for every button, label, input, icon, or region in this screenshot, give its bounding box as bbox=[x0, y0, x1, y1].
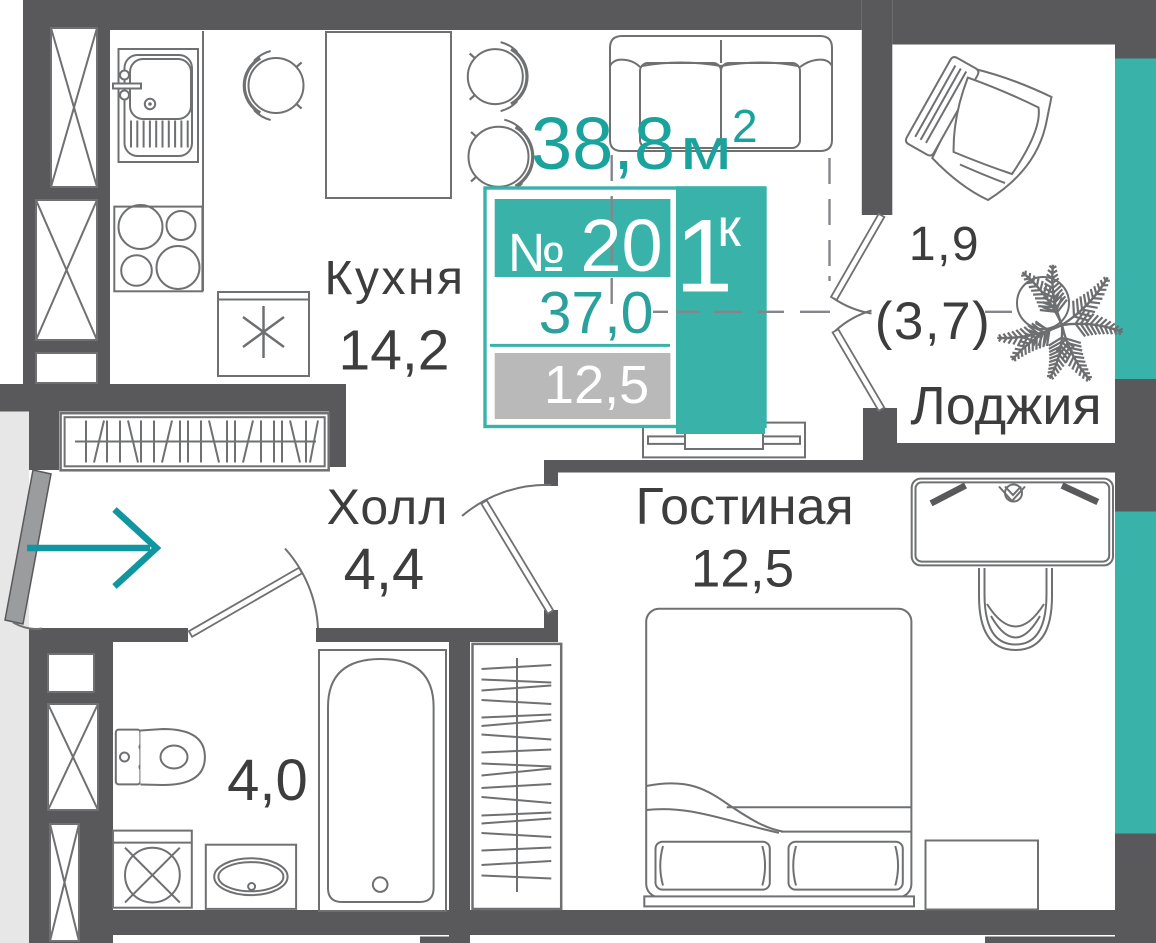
svg-text:37,0: 37,0 bbox=[539, 280, 654, 346]
svg-text:12,5: 12,5 bbox=[544, 355, 649, 415]
svg-text:Лоджия: Лоджия bbox=[910, 376, 1101, 436]
svg-text:Холл: Холл bbox=[327, 479, 449, 535]
svg-text:Гостиная: Гостиная bbox=[635, 478, 853, 536]
svg-text:14,2: 14,2 bbox=[339, 319, 450, 383]
svg-text:(3,7): (3,7) bbox=[875, 292, 991, 351]
svg-text:4,0: 4,0 bbox=[227, 748, 308, 813]
svg-text:1,9: 1,9 bbox=[909, 218, 980, 271]
svg-text:4,4: 4,4 bbox=[344, 537, 425, 602]
svg-text:12,5: 12,5 bbox=[691, 539, 794, 598]
svg-text:Кухня: Кухня bbox=[325, 252, 466, 305]
svg-text:к: к bbox=[717, 198, 741, 258]
